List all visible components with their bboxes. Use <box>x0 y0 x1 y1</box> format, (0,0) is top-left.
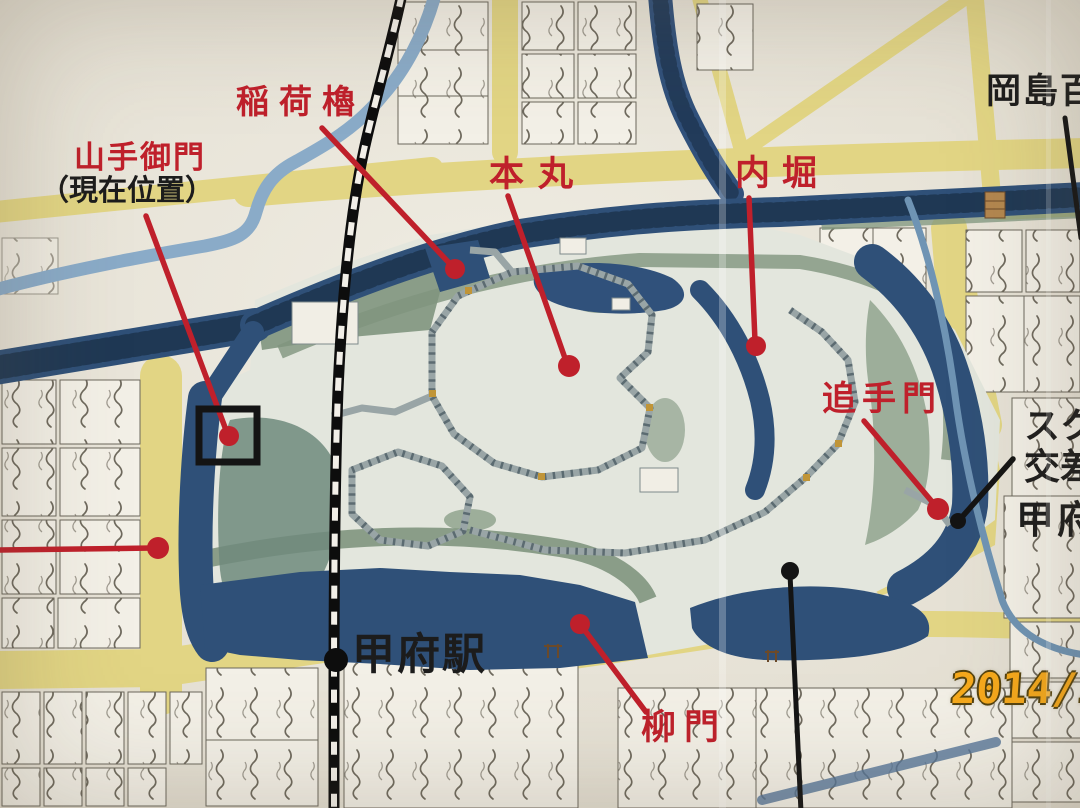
yamanote-gomon-marker-dot <box>219 426 239 446</box>
label-okajima-department-store: 岡島百 <box>986 74 1080 110</box>
otemon-marker-dot <box>927 498 949 520</box>
left-edge-pointer-line <box>0 548 154 550</box>
bottom-marker-dot <box>781 562 799 580</box>
label-inari-yagura: 稲荷櫓 <box>236 86 365 120</box>
yamanote-gomon-pointer-line <box>146 216 226 430</box>
crossing-pointer-line <box>962 459 1013 517</box>
label-otemon: 追手門 <box>822 382 942 417</box>
label-current-location: （現在位置） <box>40 176 214 206</box>
otemon-pointer-line <box>864 421 934 504</box>
inari-yagura-pointer-line <box>322 128 452 266</box>
inari-yagura-marker-dot <box>445 259 465 279</box>
uchibori-marker-dot <box>746 336 766 356</box>
yanagimon-marker-dot <box>570 614 590 634</box>
bottom-pointer-line <box>790 574 801 808</box>
label-yanagimon: 柳門 <box>641 710 727 746</box>
photographed-castle-map: 稲荷櫓 山手御門 （現在位置） 本丸 内堀 追手門 柳門 甲府駅 岡島百 スク … <box>0 0 1080 808</box>
label-crossing-line2: 交差 <box>1024 449 1080 486</box>
label-yamanote-gomon: 山手御門 <box>74 142 206 174</box>
label-uchibori: 内堀 <box>735 156 829 192</box>
label-kofu-right-edge: 甲府 <box>1016 502 1080 542</box>
uchibori-pointer-line <box>749 198 755 341</box>
label-crossing-line1: スク <box>1024 408 1080 445</box>
label-kofu-station: 甲府駅 <box>352 634 487 679</box>
camera-timestamp: 2014/1 <box>949 667 1080 711</box>
yanagimon-pointer-line <box>583 628 646 712</box>
okajima-pointer-line <box>1065 118 1080 238</box>
label-honmaru: 本丸 <box>489 157 587 193</box>
honmaru-marker-dot <box>558 355 580 377</box>
crossing-marker-dot <box>950 513 966 529</box>
left-edge-marker-dot <box>147 537 169 559</box>
honmaru-pointer-line <box>508 196 566 361</box>
